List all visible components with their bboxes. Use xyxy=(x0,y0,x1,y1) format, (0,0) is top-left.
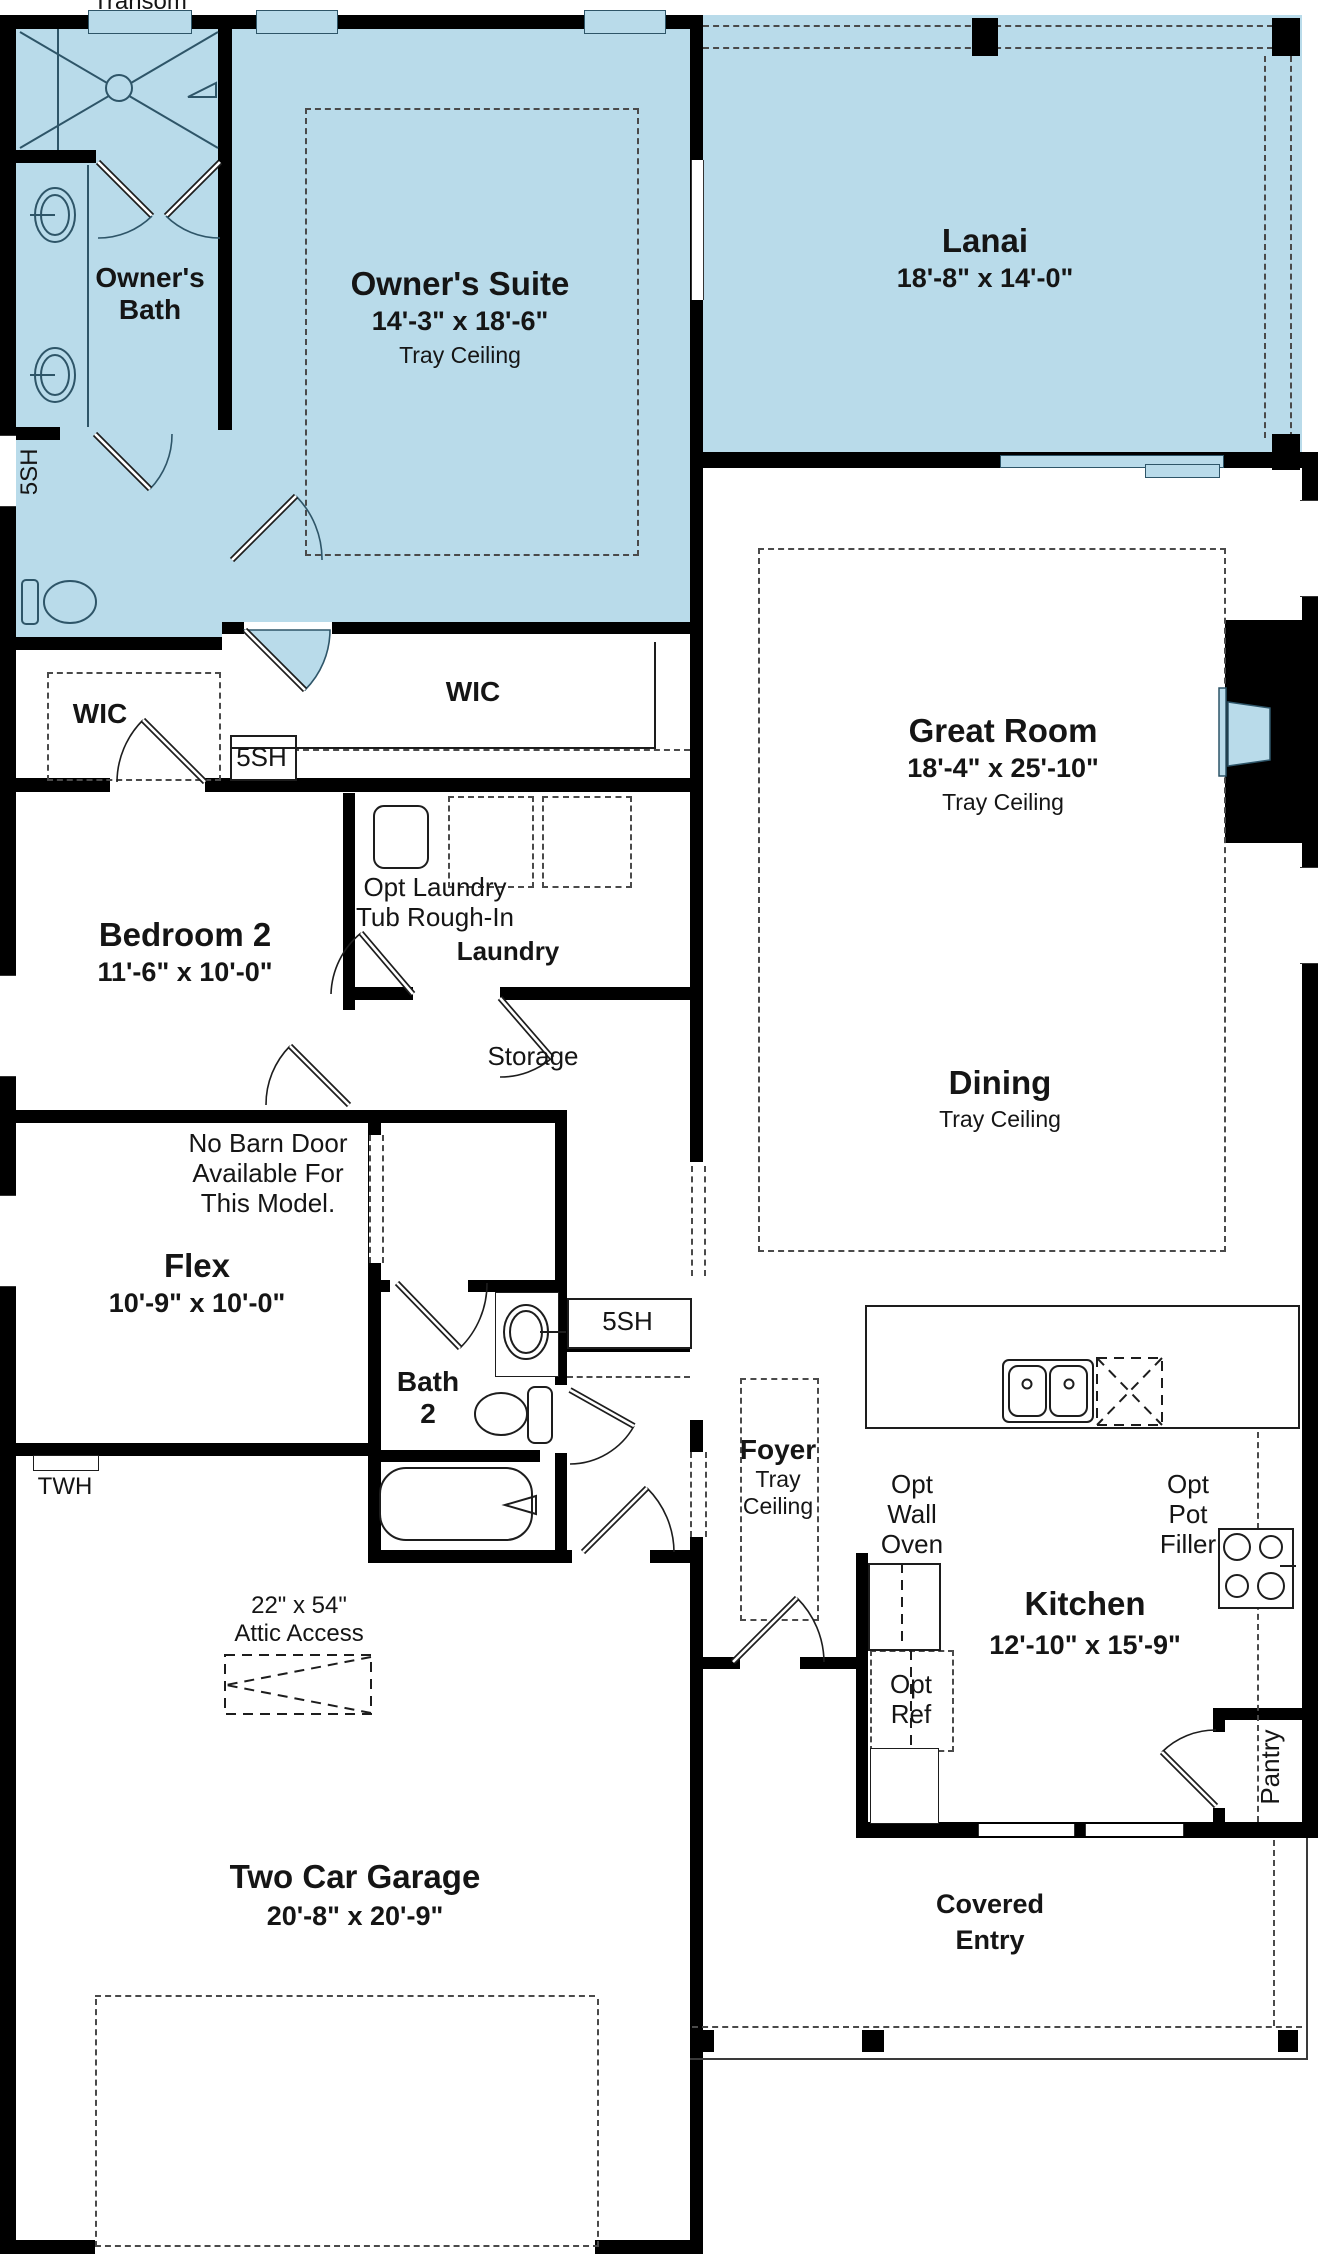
room-label-wic-main: WIC xyxy=(413,676,533,708)
wall-segment xyxy=(352,987,413,1000)
window xyxy=(0,435,16,507)
tray-ceiling-outline xyxy=(758,548,1226,1252)
room-dims-flex: 10'-9" x 10'-0" xyxy=(37,1288,357,1319)
porch-edge xyxy=(692,2026,1302,2030)
room-note-dining: Tray Ceiling xyxy=(840,1106,1160,1133)
room-note-great-room: Tray Ceiling xyxy=(843,789,1163,816)
porch-slab-line xyxy=(690,2058,1308,2060)
transom-label: Transom xyxy=(60,0,220,16)
transom-window xyxy=(256,10,338,34)
note-opt-laundry-tub: Opt Laundry Tub Rough-In xyxy=(330,872,540,932)
wall-segment xyxy=(368,1450,540,1462)
note-opt-ref: Opt Ref xyxy=(851,1669,971,1729)
wall-segment xyxy=(856,1822,1302,1838)
cased-opening xyxy=(691,1166,706,1276)
sliding-glass-door-panel xyxy=(1145,464,1220,478)
sidelite xyxy=(690,1452,707,1537)
label-twh: TWH xyxy=(25,1473,105,1501)
wall-segment xyxy=(690,468,703,1162)
wall-segment xyxy=(222,622,244,634)
room-note-foyer: Tray Ceiling xyxy=(718,1466,838,1519)
wall-segment xyxy=(468,1280,567,1292)
note-no-barn-door: No Barn Door Available For This Model. xyxy=(108,1128,428,1218)
room-note-owners-suite: Tray Ceiling xyxy=(300,342,620,369)
tub-faucet-icon xyxy=(505,1496,536,1514)
porch-post xyxy=(1278,2030,1298,2052)
room-label-storage: Storage xyxy=(453,1041,613,1071)
wall-segment xyxy=(0,1110,567,1123)
note-opt-wall-oven: Opt Wall Oven xyxy=(852,1469,972,1559)
room-label-owners-suite: Owner's Suite xyxy=(300,265,620,303)
note-attic-access: 22" x 54" Attic Access xyxy=(189,1592,409,1648)
window-label-5sh-left: 5SH xyxy=(16,440,44,504)
wall-segment xyxy=(595,2240,703,2254)
note-opt-pot-filler: Opt Pot Filler xyxy=(1128,1469,1248,1559)
wall-segment xyxy=(1213,1708,1225,1732)
room-label-great-room: Great Room xyxy=(843,712,1163,750)
wall-segment xyxy=(650,1550,703,1563)
room-label-flex: Flex xyxy=(37,1247,357,1285)
door-swing xyxy=(397,1283,487,1348)
room-dims-owners-suite: 14'-3" x 18'-6" xyxy=(300,306,620,337)
bathtub xyxy=(380,1468,532,1540)
porch-post xyxy=(694,2030,714,2052)
wall-segment xyxy=(690,1420,703,1454)
counter xyxy=(870,1748,939,1824)
room-dims-great-room: 18'-4" x 25'-10" xyxy=(843,753,1163,784)
laundry-tub xyxy=(374,806,428,868)
window-label-5sh-wic: 5SH xyxy=(230,742,293,772)
room-dims-bedroom2: 11'-6" x 10'-0" xyxy=(25,957,345,988)
room-dims-lanai: 18'-8" x 14'-0" xyxy=(825,263,1145,294)
room-label-kitchen: Kitchen xyxy=(925,1585,1245,1623)
room-label-dining: Dining xyxy=(840,1064,1160,1102)
room-label-wic-left: WIC xyxy=(40,698,160,730)
window xyxy=(0,1195,16,1287)
window xyxy=(978,1824,1075,1836)
porch-edge xyxy=(1273,1840,1278,2026)
post xyxy=(1272,18,1300,56)
bath2-vanity xyxy=(495,1292,559,1377)
room-dims-kitchen: 12'-10" x 15'-9" xyxy=(925,1630,1245,1661)
wall-segment xyxy=(1213,1808,1225,1824)
room-label-bath2: Bath 2 xyxy=(368,1366,488,1431)
room-dims-garage: 20'-8" x 20'-9" xyxy=(195,1901,515,1932)
room-label-pantry: Pantry xyxy=(1255,1712,1285,1822)
post xyxy=(1272,434,1300,470)
driveway-outline xyxy=(95,1999,599,2247)
wall-segment xyxy=(332,622,703,634)
shelf-line xyxy=(293,749,690,753)
wall-segment xyxy=(555,1453,567,1563)
porch-post xyxy=(862,2030,884,2052)
kitchen-island-counter xyxy=(865,1305,1300,1429)
media-wall xyxy=(1225,620,1302,843)
wall-segment xyxy=(368,1280,390,1292)
room-label-garage: Two Car Garage xyxy=(195,1858,515,1896)
screen-wall xyxy=(1264,56,1292,438)
dryer-outline xyxy=(542,796,632,888)
window xyxy=(1085,1824,1184,1836)
room-label-foyer: Foyer xyxy=(718,1434,838,1466)
wall-segment xyxy=(368,1550,572,1563)
wall-segment xyxy=(14,150,96,163)
tankless-water-heater xyxy=(33,1455,99,1471)
door-swing xyxy=(570,1390,634,1464)
room-label-lanai: Lanai xyxy=(825,222,1145,260)
wall-segment xyxy=(690,1537,703,2252)
owners-bath-floor xyxy=(14,29,222,637)
room-label-laundry: Laundry xyxy=(428,936,588,966)
wall-segment xyxy=(218,29,232,430)
wall-segment xyxy=(0,2240,95,2254)
window xyxy=(0,975,16,1077)
room-label-owners-bath: Owner's Bath xyxy=(40,262,260,327)
toilet-tank xyxy=(528,1387,552,1443)
room-label-covered-entry: Covered Entry xyxy=(880,1886,1100,1959)
door-swing xyxy=(1162,1730,1216,1806)
door-swing xyxy=(583,1488,674,1552)
wall-segment xyxy=(1302,452,1318,1838)
attic-access xyxy=(225,1655,371,1714)
porch-slab-line xyxy=(1306,1838,1308,2060)
window-label-5sh-hall: 5SH xyxy=(567,1306,688,1336)
wall-segment xyxy=(14,427,60,440)
door-swing xyxy=(266,1046,349,1105)
post xyxy=(972,18,998,56)
window xyxy=(1300,867,1318,964)
room-label-bedroom2: Bedroom 2 xyxy=(25,916,345,954)
wall-segment xyxy=(500,987,690,1000)
wall-segment xyxy=(14,637,222,650)
window xyxy=(691,160,704,300)
transom-window xyxy=(584,10,666,34)
opening-line xyxy=(567,1376,690,1380)
door-swing xyxy=(245,630,330,690)
wall-segment xyxy=(0,15,16,2252)
window xyxy=(1300,500,1318,597)
wall-segment xyxy=(690,1657,740,1669)
floor-plan: Transom Owner's Bath Owner's Suite 14'-3… xyxy=(0,0,1318,2264)
